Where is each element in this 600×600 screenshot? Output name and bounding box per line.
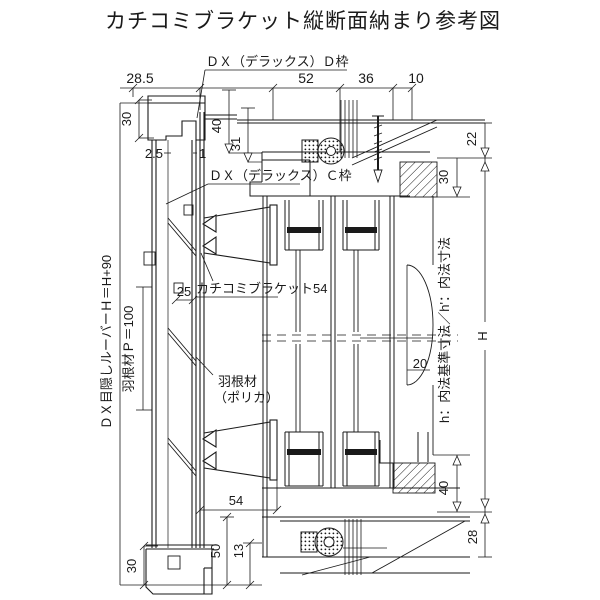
leader-lines: [166, 70, 347, 375]
dim-28-5: 28.5: [126, 70, 153, 86]
dim-13: 13: [231, 544, 246, 558]
label-blade-material-2: （ポリカ）: [214, 390, 279, 405]
page-title: カチコミブラケット縦断面納まり参考図: [105, 10, 501, 33]
dim-28: 28: [465, 530, 480, 544]
label-blade-material: 羽根材: [218, 374, 257, 389]
kachikomi-bracket-lower: [203, 420, 277, 480]
dim-52: 52: [298, 70, 314, 86]
dim-30-top-left: 30: [119, 112, 134, 126]
label-dx-c-frame: ＤＸ（デラックス）Ｃ枠: [209, 168, 352, 183]
dim-40-bottom: 40: [436, 481, 451, 495]
dim-25: 25: [177, 284, 191, 299]
dim-22: 22: [464, 132, 479, 146]
dim-overall-H: H: [475, 331, 490, 340]
drawing-sheet: カチコミブラケット縦断面納まり参考図: [0, 0, 600, 600]
note-louver-height: ＤＸ目隠しルーバーＨ＝H+90: [99, 255, 114, 429]
dim-36: 36: [358, 70, 374, 86]
louver-assembly: [144, 96, 214, 594]
dim-30-right: 30: [436, 170, 451, 184]
note-blade-pitch: 羽根材Ｐ＝100: [121, 306, 136, 393]
dim-31: 31: [228, 137, 243, 151]
dim-40-top: 40: [209, 119, 224, 133]
label-kachikomi-bracket: カチコミブラケット54: [196, 281, 327, 296]
dim-10: 10: [408, 70, 424, 86]
note-inner-dimension: h：内法基準寸法／h'：内法寸法: [437, 237, 452, 423]
head-screw-icon: [372, 116, 384, 182]
kachikomi-bracket-upper: [203, 205, 277, 265]
dim-1: 1: [199, 146, 206, 161]
dim-50: 50: [208, 544, 223, 558]
dim-30-bottom-left: 30: [124, 559, 139, 573]
dim-2-5: 2.5: [145, 146, 163, 161]
dim-54: 54: [229, 493, 243, 508]
dim-20: 20: [413, 356, 427, 371]
top-dimension-chain: [120, 84, 416, 152]
label-dx-d-frame: ＤＸ（デラックス）Ｄ枠: [206, 54, 349, 69]
